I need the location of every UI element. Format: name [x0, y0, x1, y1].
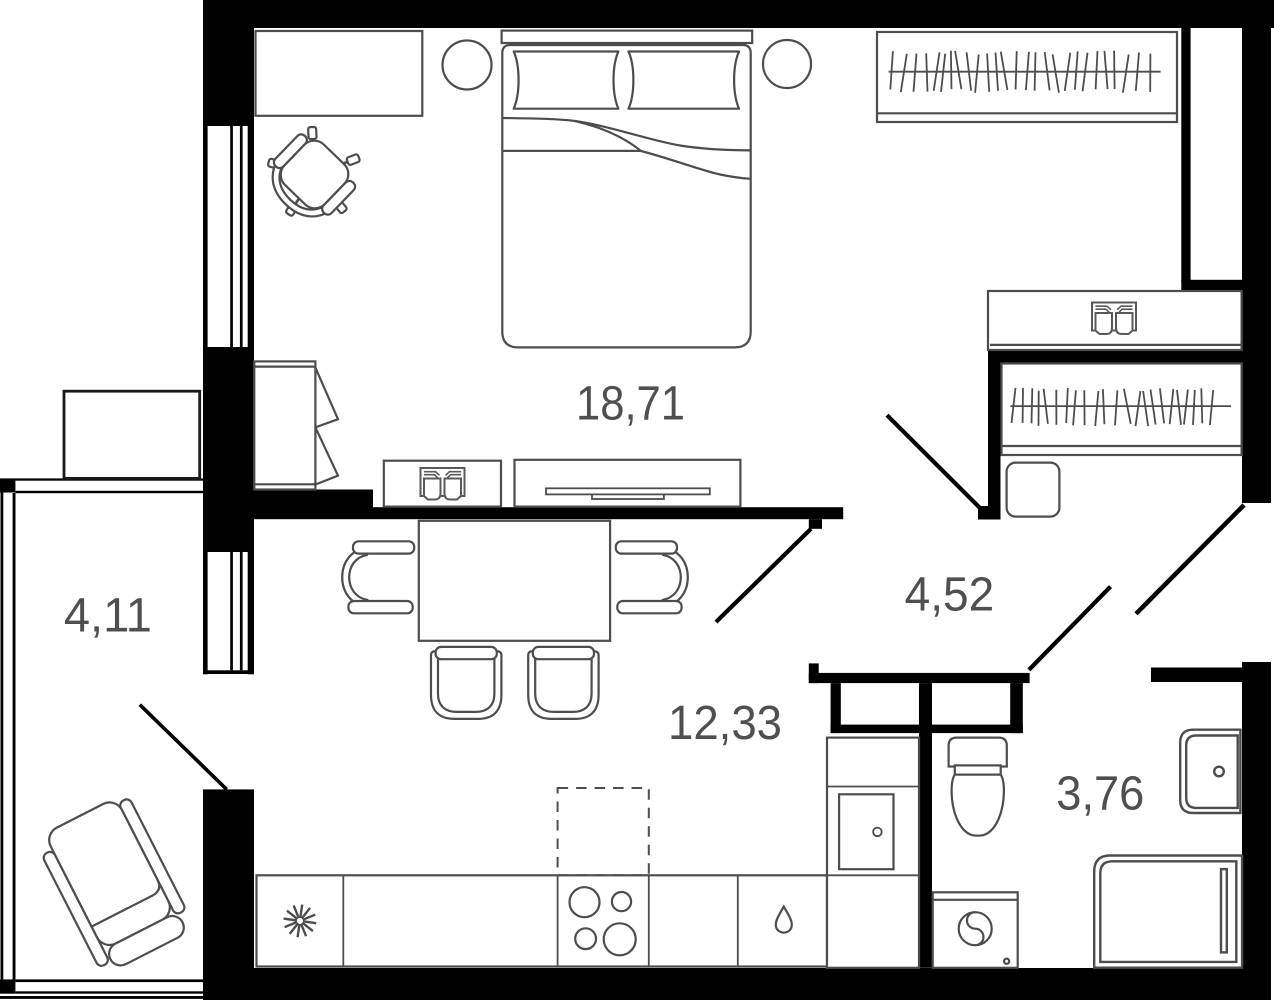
- svg-text:3,76: 3,76: [1056, 766, 1144, 820]
- svg-text:4,52: 4,52: [905, 568, 995, 622]
- svg-text:18,71: 18,71: [576, 376, 685, 430]
- svg-text:4,11: 4,11: [64, 589, 152, 643]
- svg-text:12,33: 12,33: [668, 696, 782, 750]
